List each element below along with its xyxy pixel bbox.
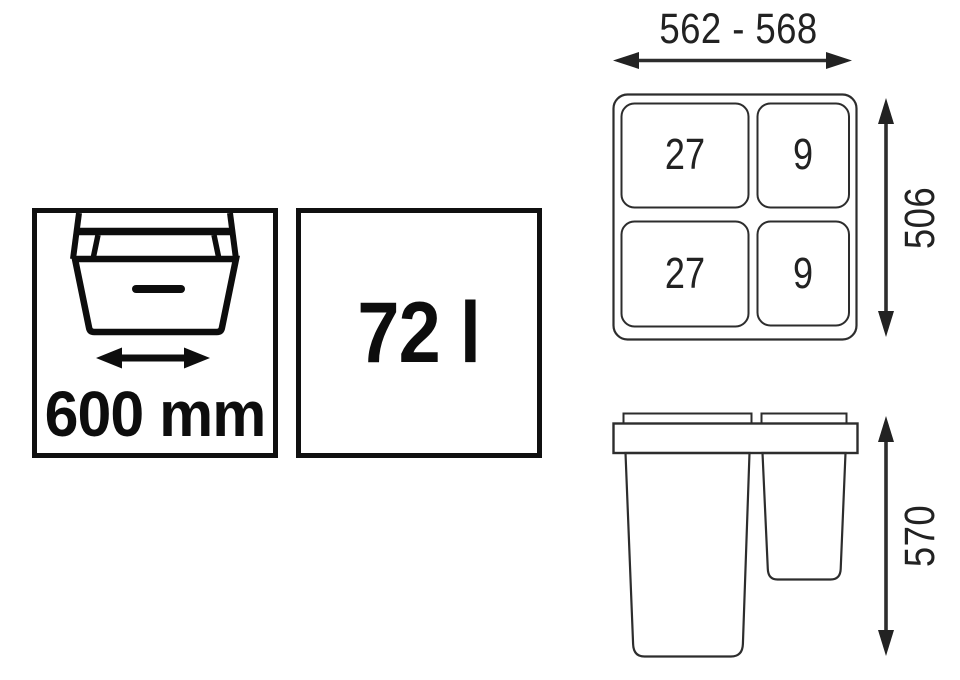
drawer-handle — [132, 285, 185, 293]
compartment-volume-top-left: 27 — [633, 133, 738, 177]
width-arrowhead-right — [184, 348, 210, 369]
drawer-width-value: 600 mm — [38, 382, 272, 446]
drawer-front-panel — [75, 259, 236, 332]
top-height-dimension-label: 506 — [898, 159, 942, 278]
bin-body-large — [626, 453, 750, 657]
compartment-volume-bottom-left: 27 — [633, 252, 738, 296]
bin-frame-outline — [614, 95, 857, 340]
width-arrow-icon — [96, 348, 210, 369]
v-arrowhead-down — [878, 311, 894, 337]
drawer-front — [75, 259, 236, 332]
bin-lid-left — [624, 414, 752, 424]
width-arrowhead-left — [96, 348, 122, 369]
bin-lid-right — [762, 414, 847, 424]
compartment-volume-bottom-right: 9 — [765, 252, 840, 296]
mounting-rail — [614, 424, 858, 454]
cabinet-side-left — [73, 213, 79, 259]
h-arrowhead-right — [826, 52, 852, 69]
vertical-dimension-arrow-icon — [878, 98, 894, 337]
cabinet-top — [73, 213, 236, 259]
front-height-dimension-label: 570 — [898, 477, 942, 596]
v-arrowhead-up — [878, 416, 894, 442]
runner-right — [214, 235, 219, 259]
capacity-value: 72 l — [358, 290, 481, 376]
bin-body-small — [763, 453, 846, 580]
product-dimension-sheet: 600 mm 72 l 562 - 568 27 9 27 9 506 — [0, 0, 960, 680]
vertical-dimension-arrow-icon — [878, 416, 894, 656]
v-arrowhead-up — [878, 98, 894, 124]
cabinet-side-right — [230, 213, 236, 259]
compartment-volume-top-right: 9 — [765, 133, 840, 177]
v-arrowhead-down — [878, 630, 894, 656]
runner-left — [93, 235, 98, 259]
horizontal-dimension-arrow-icon — [613, 52, 852, 69]
capacity-value-wrap: 72 l — [296, 208, 542, 458]
h-arrowhead-left — [613, 52, 639, 69]
